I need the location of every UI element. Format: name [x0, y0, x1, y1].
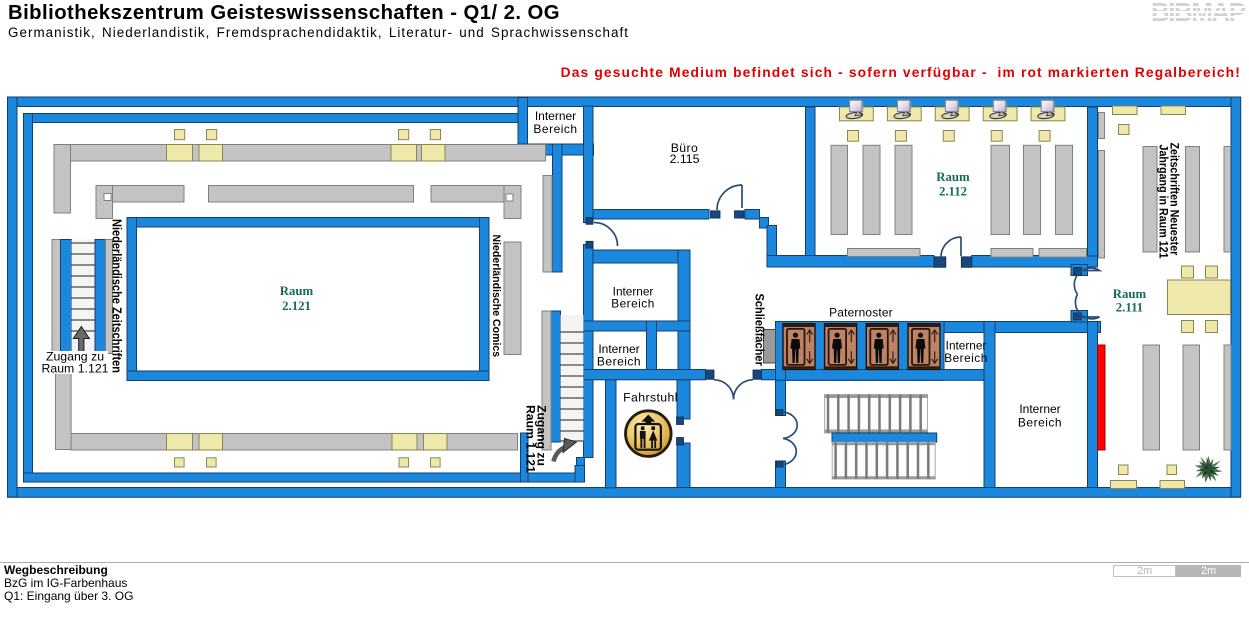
- svg-text:Raum 1.121: Raum 1.121: [42, 362, 109, 376]
- svg-text:Bereich: Bereich: [1018, 416, 1062, 430]
- svg-text:Interner: Interner: [535, 109, 576, 123]
- svg-text:Fahrstuhl: Fahrstuhl: [623, 391, 678, 405]
- svg-text:2.121: 2.121: [282, 299, 311, 313]
- svg-text:Raum 1.121: Raum 1.121: [524, 405, 538, 473]
- svg-text:2.115: 2.115: [670, 152, 700, 166]
- svg-text:Niederländische Zeitschriften: Niederländische Zeitschriften: [109, 219, 123, 373]
- svg-text:2.111: 2.111: [1116, 301, 1143, 315]
- svg-text:Schließfächer: Schließfächer: [752, 294, 764, 367]
- svg-text:Raum: Raum: [1113, 287, 1147, 301]
- svg-text:Bereich: Bereich: [533, 122, 577, 136]
- svg-text:Interner: Interner: [1019, 402, 1060, 416]
- svg-text:Bereich: Bereich: [944, 351, 988, 365]
- svg-text:Bereich: Bereich: [597, 354, 641, 368]
- svg-text:Raum: Raum: [280, 284, 314, 298]
- svg-text:Paternoster: Paternoster: [829, 306, 893, 320]
- svg-text:Niederländische Comics: Niederländische Comics: [490, 235, 502, 358]
- svg-text:Bereich: Bereich: [611, 297, 655, 311]
- svg-text:Jahrgang in Raum 121: Jahrgang in Raum 121: [1156, 145, 1168, 259]
- svg-text:2.112: 2.112: [939, 185, 967, 199]
- svg-text:Raum: Raum: [936, 170, 970, 184]
